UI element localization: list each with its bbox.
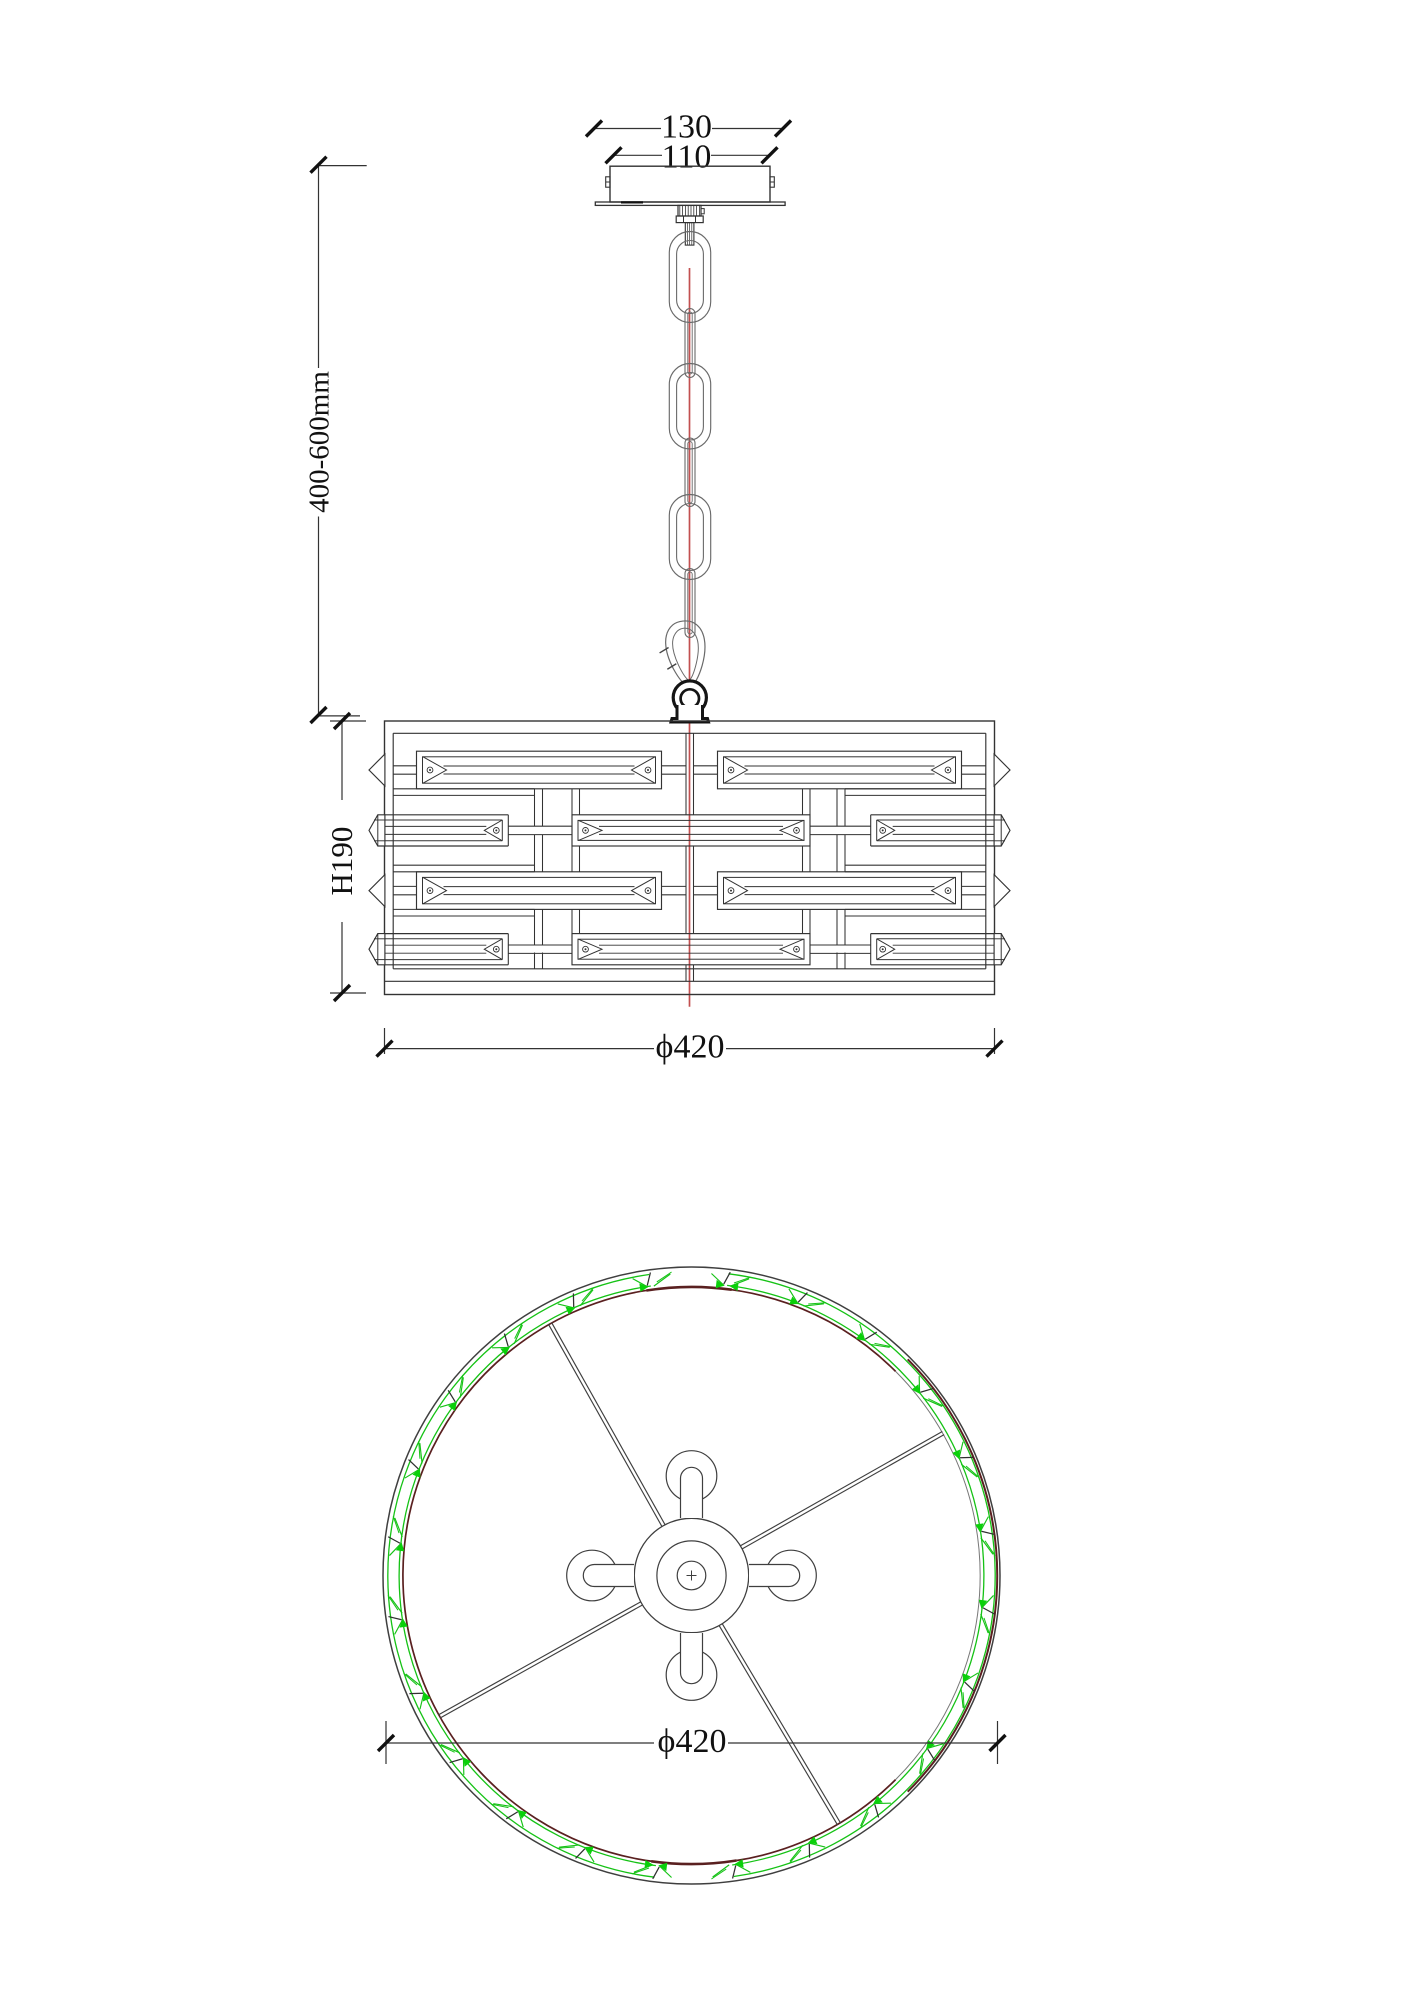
svg-text:ϕ420: ϕ420 [656, 1029, 725, 1066]
svg-text:400-600mm: 400-600mm [304, 371, 336, 513]
svg-text:H190: H190 [324, 827, 359, 896]
svg-text:ϕ420: ϕ420 [658, 1723, 727, 1760]
svg-text:110: 110 [662, 139, 712, 176]
